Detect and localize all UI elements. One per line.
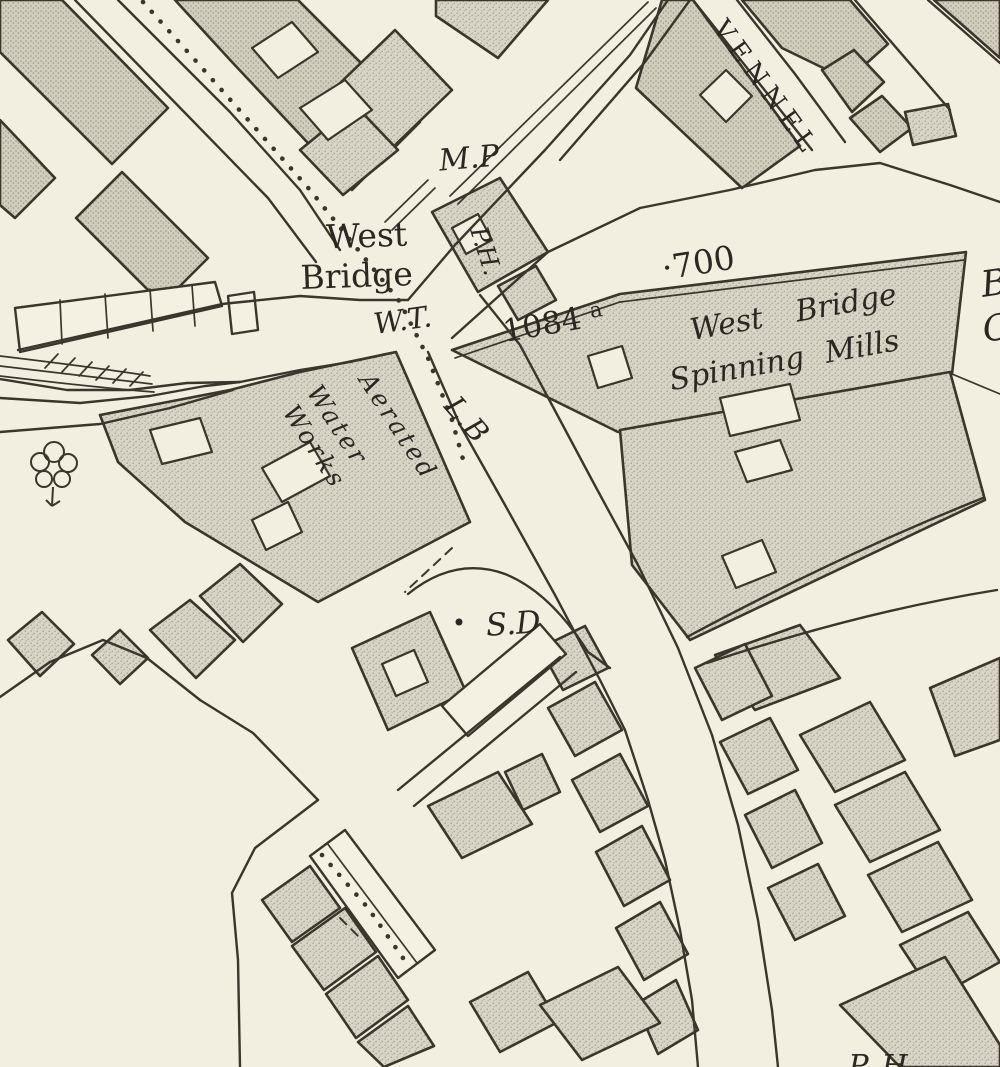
building-blocks — [0, 0, 1000, 1067]
label-west: West — [325, 215, 407, 257]
historic-town-plan: M.P West Bridge P.H. W.T. 1084 a ·700 We… — [0, 0, 1000, 1067]
sd-point — [456, 619, 463, 626]
label-edge-b: B — [977, 261, 1000, 305]
label-edge-c: C — [980, 306, 1000, 350]
label-letter-box: L.B — [437, 389, 496, 450]
bridge-hatching — [0, 354, 154, 392]
map-canvas: M.P West Bridge P.H. W.T. 1084 a ·700 We… — [0, 0, 1000, 1067]
tree-icon — [31, 442, 77, 506]
label-sanitary-depot: S.D — [485, 604, 542, 644]
label-bottom-partial: P. H — [847, 1049, 908, 1067]
label-water-trough: W.T. — [371, 299, 433, 341]
label-milepost: M.P — [437, 138, 502, 178]
label-bridge: Bridge — [300, 254, 414, 297]
